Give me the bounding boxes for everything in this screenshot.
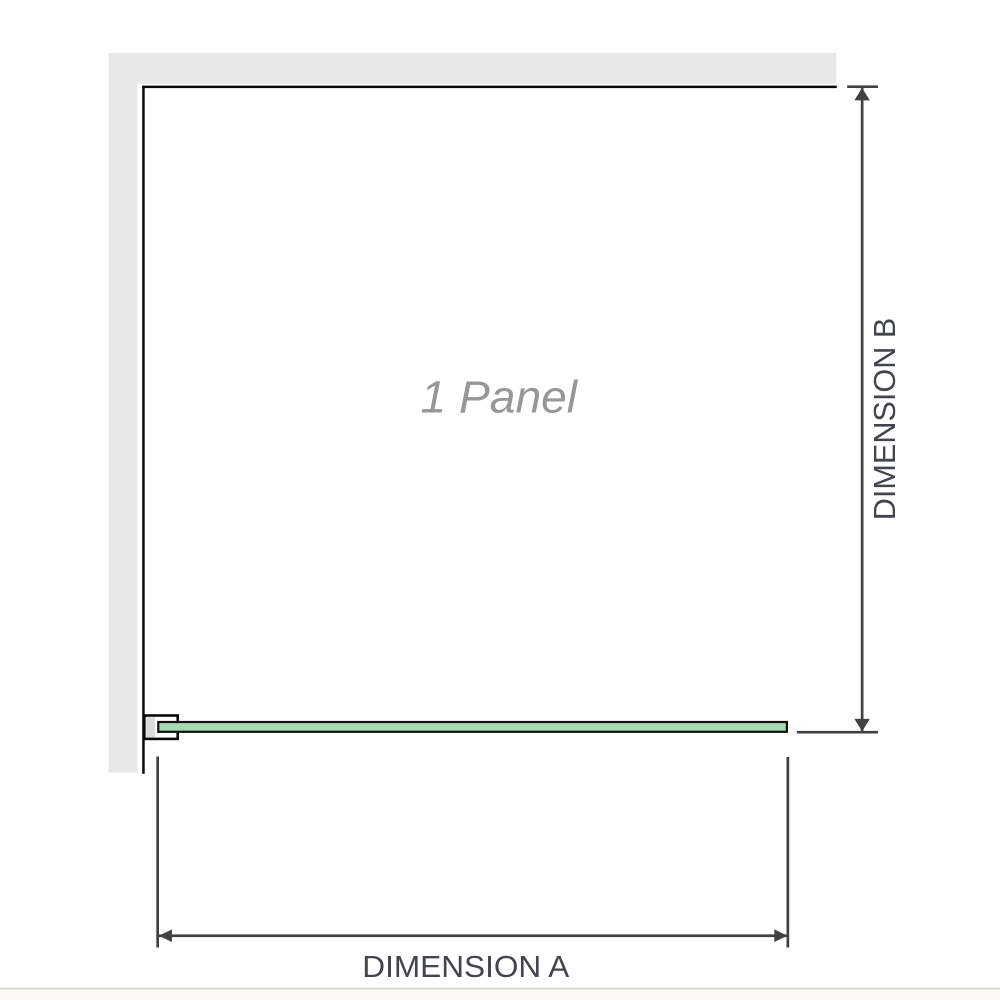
- svg-text:DIMENSION B: DIMENSION B: [867, 318, 902, 521]
- svg-text:1 Panel: 1 Panel: [421, 372, 579, 423]
- svg-text:DIMENSION A: DIMENSION A: [362, 949, 569, 984]
